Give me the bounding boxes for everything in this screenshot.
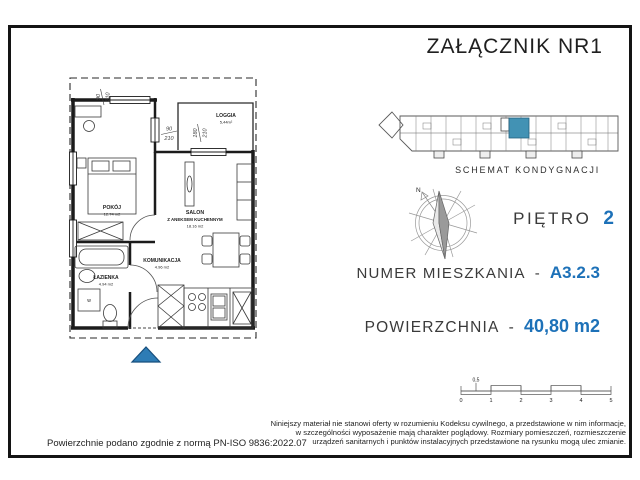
disclaimer: Niniejszy materiał nie stanowi oferty w … bbox=[271, 419, 626, 446]
scale-tick-1: 1 bbox=[489, 398, 492, 404]
room-label-lazienka: ŁAZIENKA bbox=[93, 275, 119, 281]
apartment-number-value: A3.2.3 bbox=[550, 263, 600, 282]
room-sublabel-salon: Z ANEKSEM KUCHENNYM bbox=[167, 217, 223, 222]
compass-rose: N bbox=[402, 182, 488, 268]
scale-tick-4: 4 bbox=[579, 398, 582, 404]
norm-note: Powierzchnie podano zgodnie z normą PN-I… bbox=[47, 438, 307, 449]
scale-bar: 0,5 0 1 2 3 4 5 bbox=[453, 375, 623, 409]
schematic-highlighted-unit bbox=[509, 118, 529, 138]
apartment-separator: - bbox=[535, 265, 541, 282]
area-value: 40,80 m2 bbox=[524, 316, 600, 336]
room-area-komunikacja: 4.96 m2 bbox=[155, 265, 170, 270]
window-symbols bbox=[70, 97, 227, 258]
svg-text:210: 210 bbox=[163, 136, 174, 142]
room-label-komunikacja: KOMUNIKACJA bbox=[143, 258, 181, 264]
svg-text:90: 90 bbox=[166, 127, 173, 133]
room-label-salon: SALON bbox=[186, 210, 204, 216]
svg-text:90: 90 bbox=[96, 93, 102, 100]
area-label: POWIERZCHNIA bbox=[365, 319, 500, 336]
page-title: ZAŁĄCZNIK NR1 bbox=[427, 35, 603, 59]
svg-text:210: 210 bbox=[203, 127, 209, 138]
dimension-top: 90 210 bbox=[96, 89, 112, 105]
floor-plan: POKÓJ 12.74 m2 SALON Z ANEKSEM KUCHENNYM… bbox=[58, 70, 273, 370]
room-area-lazienka: 4.94 m2 bbox=[99, 282, 114, 287]
building-schematic bbox=[368, 103, 624, 173]
svg-text:210: 210 bbox=[106, 91, 112, 102]
room-label-loggia: LOGGIA bbox=[216, 113, 236, 119]
area-row: POWIERZCHNIA-40,80 m2 bbox=[365, 316, 600, 337]
scale-tick-5: 5 bbox=[609, 398, 612, 404]
floor-value: 2 bbox=[603, 208, 614, 229]
disclaimer-line-1: Niniejszy materiał nie stanowi oferty w … bbox=[271, 419, 626, 428]
scale-tick-0: 0 bbox=[459, 398, 462, 404]
floor-row: PIĘTRO2 bbox=[513, 208, 614, 230]
compass-needle-dark bbox=[439, 191, 449, 259]
room-area-salon: 18.16 m2 bbox=[187, 224, 204, 229]
apartment-number-row: NUMER MIESZKANIA-A3.2.3 bbox=[356, 263, 600, 283]
entrance-triangle bbox=[132, 347, 160, 362]
schematic-highlight-unit-outline bbox=[501, 118, 509, 131]
area-separator: - bbox=[509, 319, 515, 336]
apartment-number-label: NUMER MIESZKANIA bbox=[356, 265, 525, 282]
disclaimer-line-2: w szczególności wyposażenie mają charakt… bbox=[271, 428, 626, 437]
washer-label: w bbox=[87, 298, 91, 304]
svg-text:180: 180 bbox=[193, 127, 199, 137]
compass-north-label: N bbox=[416, 187, 421, 194]
scale-half-label: 0,5 bbox=[473, 378, 480, 384]
room-area-pokoj: 12.74 m2 bbox=[104, 212, 121, 217]
schematic-caption: SCHEMAT KONDYGNACJI bbox=[455, 165, 600, 175]
loggia-walls bbox=[178, 103, 253, 150]
door-arcs bbox=[128, 215, 158, 328]
floor-label: PIĘTRO bbox=[513, 209, 591, 228]
room-label-pokoj: POKÓJ bbox=[103, 203, 121, 211]
dimension-middle: 90 210 bbox=[161, 127, 177, 143]
dimension-loggia: 180 210 bbox=[193, 124, 209, 142]
scale-tick-3: 3 bbox=[549, 398, 552, 404]
room-area-loggia: 5,44m² bbox=[220, 120, 233, 125]
walls bbox=[71, 98, 255, 328]
scale-tick-2: 2 bbox=[519, 398, 522, 404]
disclaimer-line-3: urządzeń sanitarnych i punktów instalacy… bbox=[271, 437, 626, 446]
